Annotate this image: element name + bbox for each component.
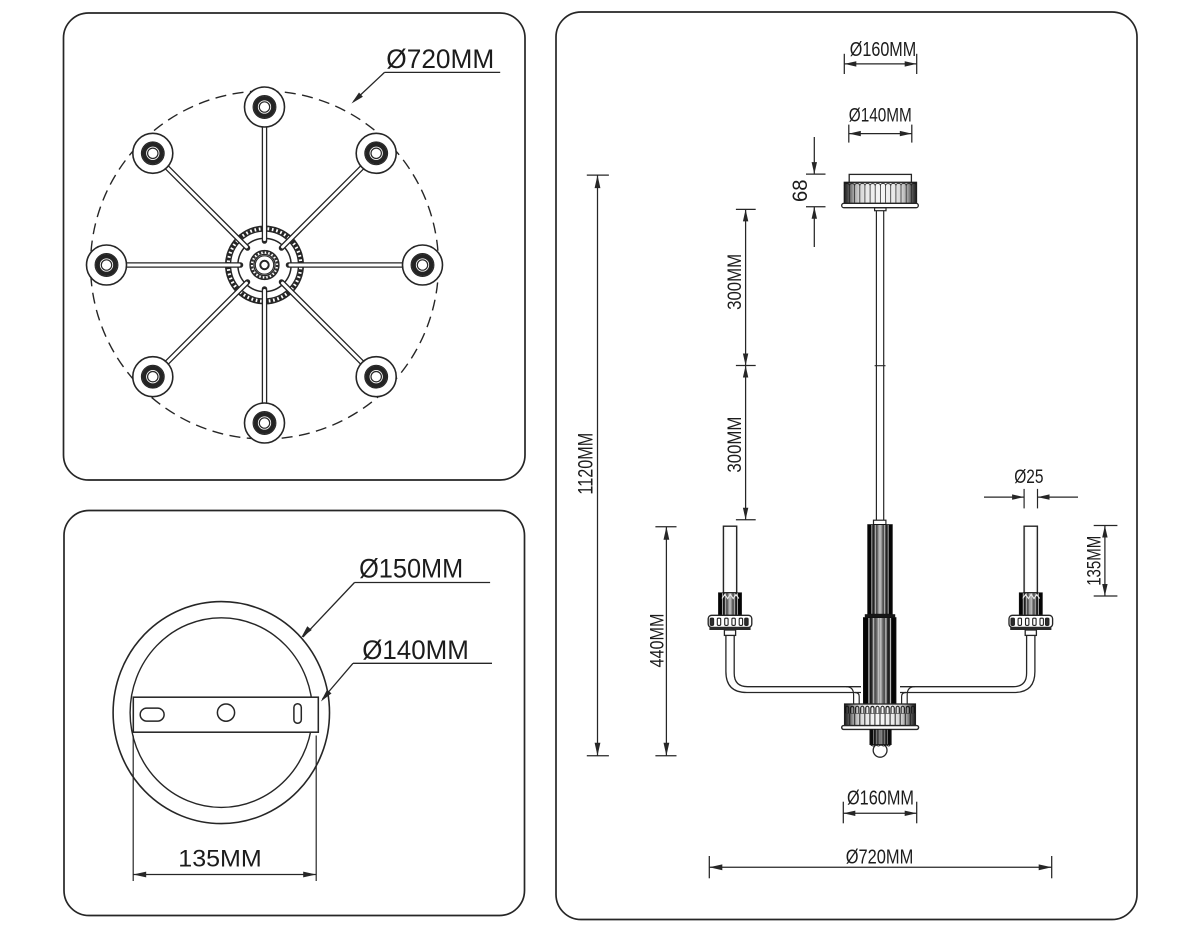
svg-text:68: 68 [788, 180, 812, 202]
svg-text:Ø160MM: Ø160MM [847, 788, 914, 810]
svg-text:Ø720MM: Ø720MM [846, 845, 914, 868]
svg-text:Ø140MM: Ø140MM [362, 635, 469, 665]
svg-text:300MM: 300MM [725, 254, 746, 310]
svg-text:Ø720MM: Ø720MM [386, 44, 494, 74]
svg-text:Ø150MM: Ø150MM [359, 554, 463, 584]
svg-text:300MM: 300MM [725, 417, 746, 473]
svg-text:440MM: 440MM [648, 614, 669, 668]
svg-text:135MM: 135MM [178, 846, 261, 873]
svg-text:Ø160MM: Ø160MM [850, 39, 916, 61]
svg-text:Ø140MM: Ø140MM [849, 105, 912, 126]
svg-text:1120MM: 1120MM [574, 433, 598, 495]
svg-text:135MM: 135MM [1084, 536, 1105, 586]
svg-text:Ø25: Ø25 [1014, 467, 1043, 488]
